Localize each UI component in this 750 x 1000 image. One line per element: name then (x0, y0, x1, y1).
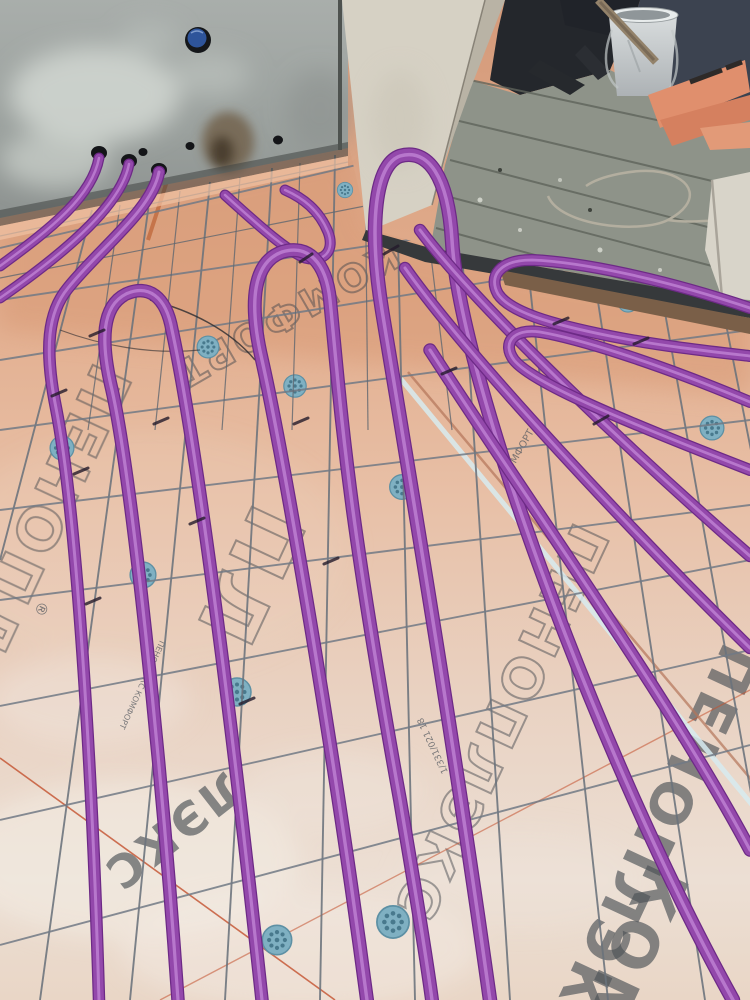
construction-photo: ПЕНОПЛЭКС КОМФОРТ ПЕНОПЛЭКС КОМФОРТ ПЕНО… (0, 0, 750, 1000)
photo-canvas: ПЕНОПЛЭКС КОМФОРТ ПЕНОПЛЭКС КОМФОРТ ПЕНО… (0, 0, 750, 1000)
jamb-gap (338, 0, 342, 150)
